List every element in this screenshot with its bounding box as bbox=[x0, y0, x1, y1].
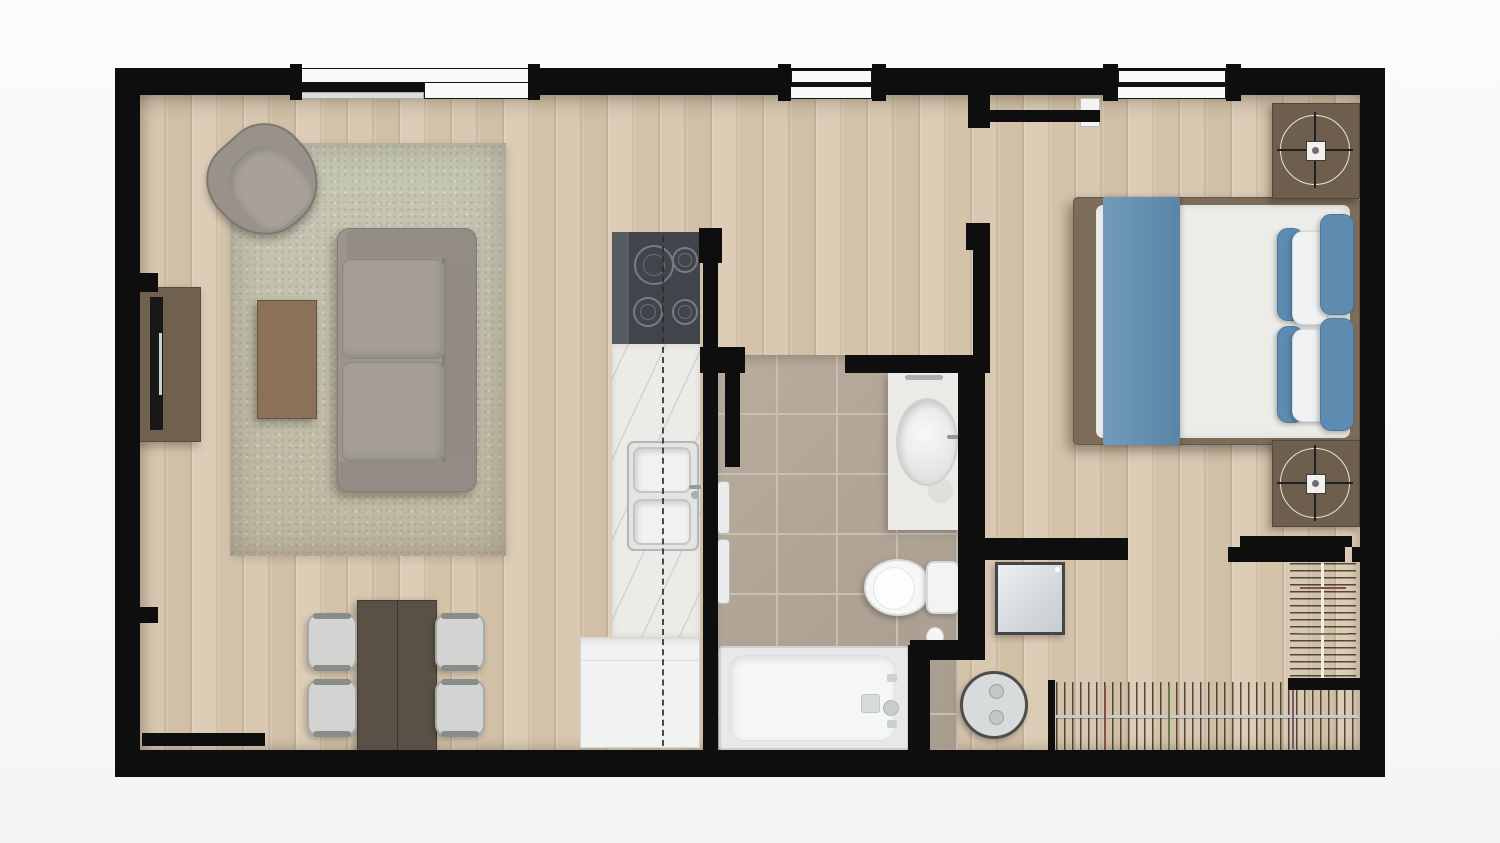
tub-separator-wall bbox=[908, 645, 930, 755]
sofa-arm-bottom bbox=[338, 462, 472, 491]
window-sill bbox=[300, 92, 424, 99]
tv-screen-glint bbox=[159, 333, 162, 395]
clothes-color-accent bbox=[1292, 686, 1294, 749]
bedroom-wall-bottom bbox=[985, 538, 1128, 560]
window-pane bbox=[1112, 86, 1226, 99]
closet-divider-thin bbox=[1048, 680, 1055, 753]
toilet-seat bbox=[873, 567, 915, 610]
washer-knob-icon bbox=[1055, 567, 1060, 572]
dining-chair bbox=[435, 613, 485, 671]
hall-bedroom-wall bbox=[973, 250, 990, 373]
bathroom-door-leaf bbox=[725, 360, 740, 467]
lamp-finial bbox=[1312, 480, 1319, 487]
window-pane bbox=[1118, 70, 1226, 83]
sliding-door-track bbox=[1228, 547, 1345, 562]
hanging-clothes-horizontal bbox=[1056, 682, 1358, 753]
clothes-color-accent bbox=[1298, 633, 1348, 635]
tv-console bbox=[137, 287, 201, 442]
dining-chair bbox=[307, 613, 357, 671]
clothes-color-accent bbox=[1300, 587, 1346, 589]
table-lamp bbox=[1280, 115, 1350, 185]
faucet-icon bbox=[689, 485, 701, 489]
window-pane bbox=[785, 86, 872, 99]
cooktop bbox=[612, 232, 700, 344]
lamp-finial bbox=[1312, 147, 1319, 154]
cabinet-line bbox=[581, 660, 699, 661]
closet-rod bbox=[1321, 563, 1324, 678]
window-jamb bbox=[528, 64, 540, 100]
window-jamb bbox=[872, 64, 886, 101]
bathroom-wall-top bbox=[845, 355, 990, 373]
toilet-tank bbox=[926, 561, 960, 614]
sliding-door-panel bbox=[1240, 536, 1352, 547]
window-jamb bbox=[1226, 64, 1241, 101]
entry-door-jamb bbox=[968, 95, 990, 128]
wall-pilaster bbox=[138, 273, 158, 292]
vanity-towel-bar bbox=[905, 375, 943, 380]
floor-plan bbox=[0, 0, 1500, 843]
pillow-blue bbox=[1320, 318, 1354, 431]
sofa bbox=[337, 228, 477, 492]
hanging-clothes-vertical bbox=[1290, 563, 1356, 678]
sofa-arm-top bbox=[346, 229, 472, 258]
vanity bbox=[888, 373, 963, 530]
closet-divider-wall bbox=[1288, 678, 1360, 690]
clothes-color-accent bbox=[1168, 686, 1170, 749]
bathroom-wall-right bbox=[958, 373, 985, 660]
tub-handle-icon bbox=[887, 720, 897, 728]
sliding-door-stub bbox=[1352, 547, 1360, 562]
burner-small bbox=[672, 247, 698, 273]
table-seam bbox=[397, 601, 398, 753]
window-jamb bbox=[1103, 64, 1118, 101]
window-mullion bbox=[300, 82, 424, 92]
round-side-table bbox=[960, 671, 1028, 739]
dining-table bbox=[357, 600, 437, 754]
entry-door-leaf bbox=[988, 110, 1100, 122]
bottom-left-door-leaf bbox=[142, 733, 265, 746]
clothes-color-accent bbox=[1104, 686, 1106, 749]
wall-pilaster bbox=[138, 607, 158, 623]
cooktop-side bbox=[612, 232, 629, 344]
bathtub bbox=[719, 646, 909, 750]
wall-left bbox=[115, 95, 140, 750]
towel-bar bbox=[717, 539, 730, 604]
burner-large bbox=[634, 245, 674, 285]
wall-bottom bbox=[115, 750, 1385, 777]
dining-chair bbox=[435, 679, 485, 737]
table-lamp bbox=[1280, 448, 1350, 518]
pillow-blue bbox=[1320, 214, 1354, 315]
overhead-cabinet-dashed-line bbox=[662, 236, 664, 756]
towel-bar bbox=[717, 481, 730, 534]
sofa-cushion bbox=[342, 259, 445, 359]
kitchen-wall bbox=[703, 228, 718, 750]
hall-wall-cap bbox=[966, 223, 990, 250]
window-pane bbox=[791, 70, 872, 83]
table-knob-icon bbox=[989, 684, 1004, 699]
sofa-cushion bbox=[342, 362, 445, 462]
base-cabinet bbox=[580, 637, 700, 748]
burner-small bbox=[672, 299, 698, 325]
closet-rod bbox=[1056, 715, 1358, 718]
faucet-base-icon bbox=[691, 491, 699, 499]
tub-handle-icon bbox=[887, 674, 897, 682]
tub-faucet-icon bbox=[883, 700, 899, 716]
toilet-bowl bbox=[864, 559, 932, 616]
window-pane bbox=[424, 82, 530, 99]
washer bbox=[995, 562, 1065, 635]
window-jamb bbox=[290, 64, 302, 100]
coffee-table bbox=[257, 300, 317, 419]
sofa-backrest bbox=[442, 229, 476, 491]
vanity-sink-bowl bbox=[896, 398, 958, 486]
wall-right bbox=[1360, 95, 1385, 750]
tub-drain-icon bbox=[861, 694, 880, 713]
window-pane bbox=[300, 68, 530, 83]
dining-chair bbox=[307, 679, 357, 737]
window-jamb bbox=[778, 64, 791, 101]
tv bbox=[150, 297, 163, 430]
bed-blanket bbox=[1103, 197, 1180, 445]
table-knob-icon bbox=[989, 710, 1004, 725]
burner-medium bbox=[633, 297, 663, 327]
